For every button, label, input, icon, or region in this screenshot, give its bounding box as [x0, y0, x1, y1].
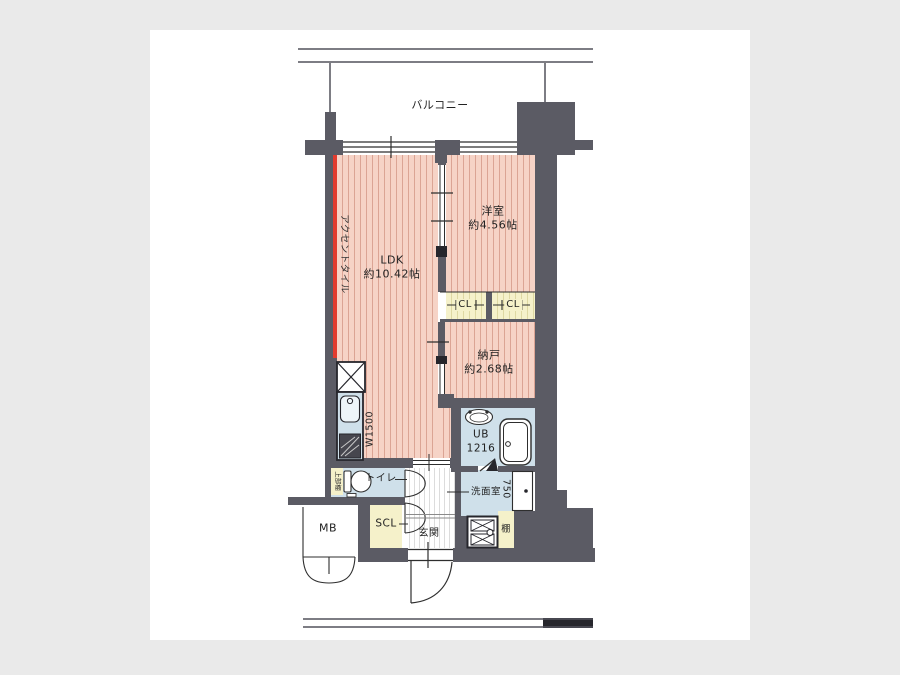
ldk-label: LDK 約10.42帖	[364, 254, 421, 283]
wall-closet-divider	[486, 292, 492, 320]
wall-toilet-bottom	[288, 497, 405, 505]
wall-ub-bottom-right	[498, 466, 535, 472]
wall-shelf-right	[514, 511, 535, 548]
wall-bottom-right	[453, 548, 595, 562]
room-ldk-floor	[337, 155, 438, 458]
accent-tile-label: アクセントタイル	[338, 214, 349, 294]
wall-top-right-block	[517, 102, 575, 155]
washer-area-floor	[467, 516, 498, 548]
wall-scl-left	[358, 505, 370, 548]
wall-ldk-bottom-right	[450, 458, 461, 468]
ldk-name: LDK	[364, 254, 421, 268]
unit-bath-name: UB	[467, 428, 496, 442]
toilet-label: トイレ	[365, 473, 397, 485]
wall-washroom-left	[455, 470, 461, 516]
shoe-closet-label: SCL	[375, 518, 396, 531]
kitchen-width-label: W1500	[364, 411, 375, 447]
meter-box-label: MB	[319, 521, 337, 534]
wall-washer-left	[455, 516, 467, 548]
storage-room-name: 納戸	[464, 349, 514, 363]
wall-partition-stub	[438, 150, 446, 165]
closet-right-label: CL	[504, 299, 522, 311]
wall-bottom-left	[358, 548, 408, 562]
western-room-label: 洋室 約4.56帖	[468, 205, 518, 234]
wall-left	[325, 140, 333, 460]
wall-left-lower	[333, 358, 337, 460]
ldk-size: 約10.42帖	[364, 268, 421, 282]
entrance-label: 玄関	[419, 528, 440, 540]
wall-right-step2	[535, 508, 593, 548]
western-room-name: 洋室	[468, 205, 518, 219]
storage-room-size: 約2.68帖	[464, 363, 514, 377]
unit-bath-size: 1216	[467, 442, 496, 456]
floorplan-canvas: バルコニー LDK 約10.42帖 洋室 約4.56帖 納戸 約2.68帖 UB…	[0, 0, 900, 675]
balcony-label: バルコニー	[411, 98, 468, 111]
wall-storage-bottom	[438, 398, 540, 408]
unit-bath-label: UB 1216	[467, 428, 496, 455]
washroom-label: 洗面室	[471, 486, 501, 497]
wall-closet-bottom	[440, 319, 535, 322]
closet-left-label: CL	[456, 299, 474, 311]
wall-right-step1	[535, 490, 567, 508]
wall-ldk-bottom	[325, 458, 413, 468]
wall-top-right-ext	[575, 140, 593, 150]
western-room-size: 約4.56帖	[468, 219, 518, 233]
wall-top-left	[305, 140, 343, 155]
wall-partition-pocket	[436, 246, 447, 257]
washroom-depth-label: 750	[500, 479, 511, 499]
wall-right	[535, 150, 557, 490]
upper-shelf-label: 上部棚	[333, 471, 341, 491]
wall-partition-lower	[438, 256, 446, 292]
bottom-boundary-thick	[543, 618, 593, 628]
wall-balcony-stub	[325, 112, 336, 140]
storage-room-label: 納戸 約2.68帖	[464, 349, 514, 378]
wall-storage-tab	[436, 356, 447, 364]
shelf-label: 棚	[501, 525, 511, 536]
room-ldk-floor-ext	[438, 408, 452, 458]
